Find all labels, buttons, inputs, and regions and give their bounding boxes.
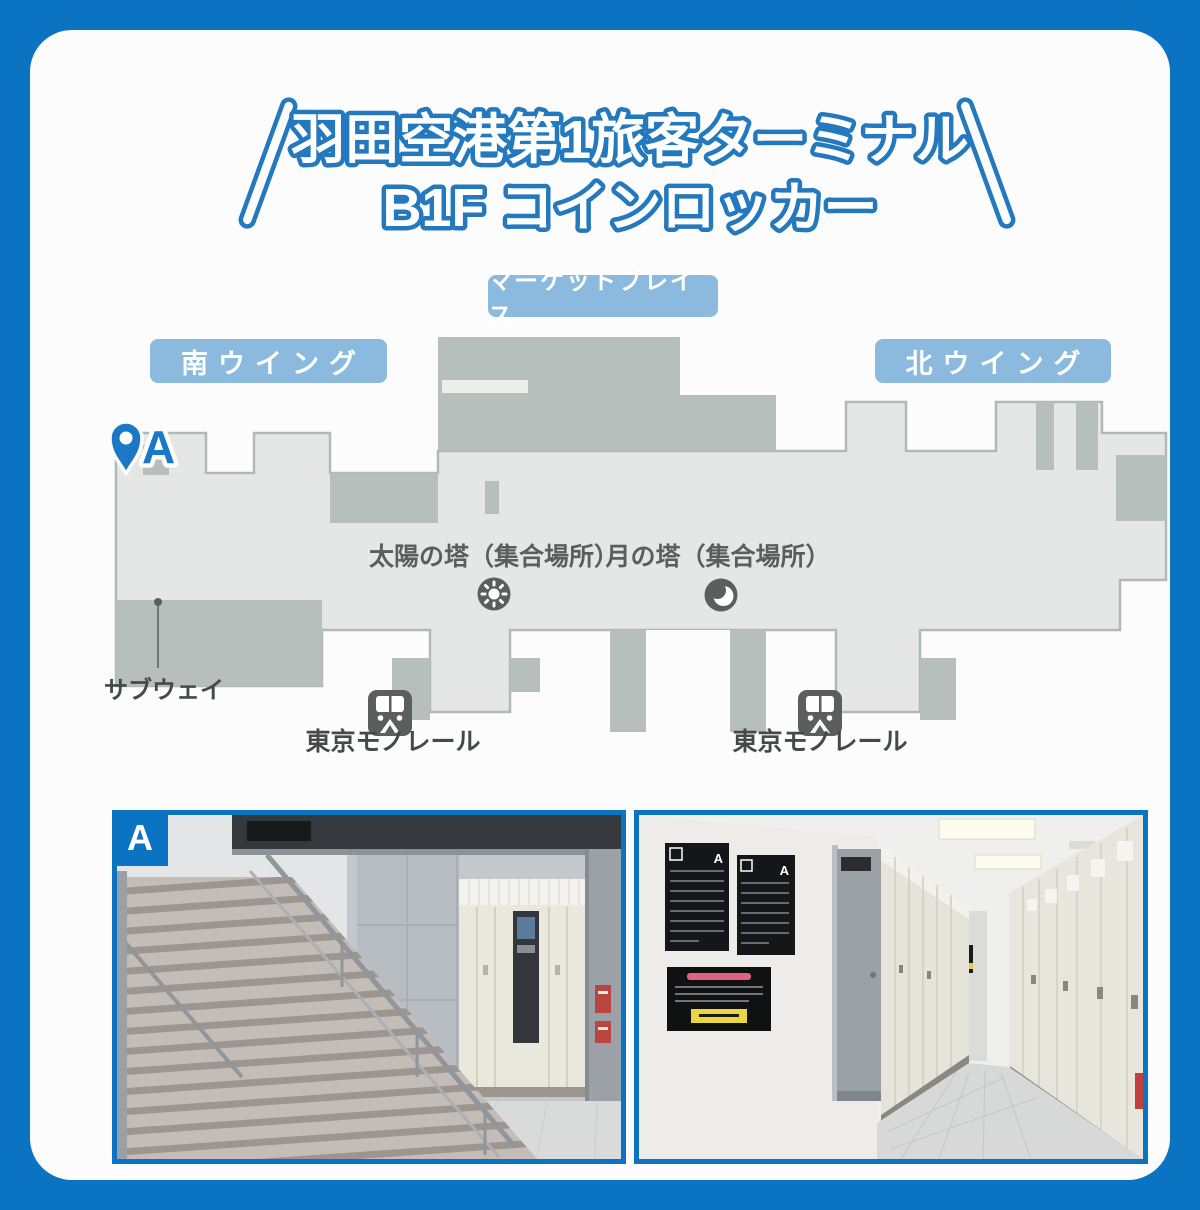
haneda-locker-guide-page: { "title": { "line1": "羽田空港第1旅客ターミナル", "…	[0, 0, 1200, 1210]
photo-locker-corridor: A A	[634, 810, 1148, 1164]
photo-strip: A	[112, 810, 1148, 1164]
locker-bank	[459, 879, 587, 1097]
monorail-left-label: 東京モノレール	[305, 727, 480, 756]
moon-icon	[705, 579, 738, 612]
poster-badge-1: A	[714, 851, 724, 866]
sun-tower-label: 太陽の塔（集合場所）	[369, 542, 619, 571]
guide-card: 羽田空港第1旅客ターミナル B1F コインロッカー	[30, 30, 1170, 1180]
title-block: 羽田空港第1旅客ターミナル B1F コインロッカー	[30, 74, 1200, 244]
monorail-right-label: 東京モノレール	[732, 727, 907, 756]
warning-sign	[667, 967, 771, 1031]
map-light-strip	[442, 380, 528, 393]
photo-location-badge: A	[112, 810, 168, 866]
moon-tower-label: 月の塔（集合場所）	[604, 542, 830, 571]
map-marker-a: A	[142, 421, 175, 473]
floor-map: サブウェイ 太陽の塔（集合場所） 月の塔（集合場所） A	[90, 330, 1170, 790]
slash-decoration-left	[239, 98, 297, 228]
photo-stairs-lockers	[112, 810, 626, 1164]
locker-info-poster-2: A	[737, 855, 795, 955]
poster-badge-2: A	[780, 863, 790, 878]
page-title-line1: 羽田空港第1旅客ターミナル	[291, 110, 969, 170]
subway-label: サブウェイ	[104, 676, 224, 704]
north-wing-pill: 北ウイング	[875, 339, 1111, 383]
sun-icon	[478, 578, 511, 611]
marketplace-pill: マーケットプレイス	[488, 275, 718, 317]
red-sticker	[1135, 1073, 1143, 1109]
locker-info-poster-1: A	[665, 843, 729, 951]
page-title-line2: B1F コインロッカー	[382, 178, 877, 238]
left-wall-door	[832, 845, 881, 1101]
map-center-passage	[646, 630, 730, 734]
south-wing-pill: 南ウイング	[150, 339, 387, 383]
